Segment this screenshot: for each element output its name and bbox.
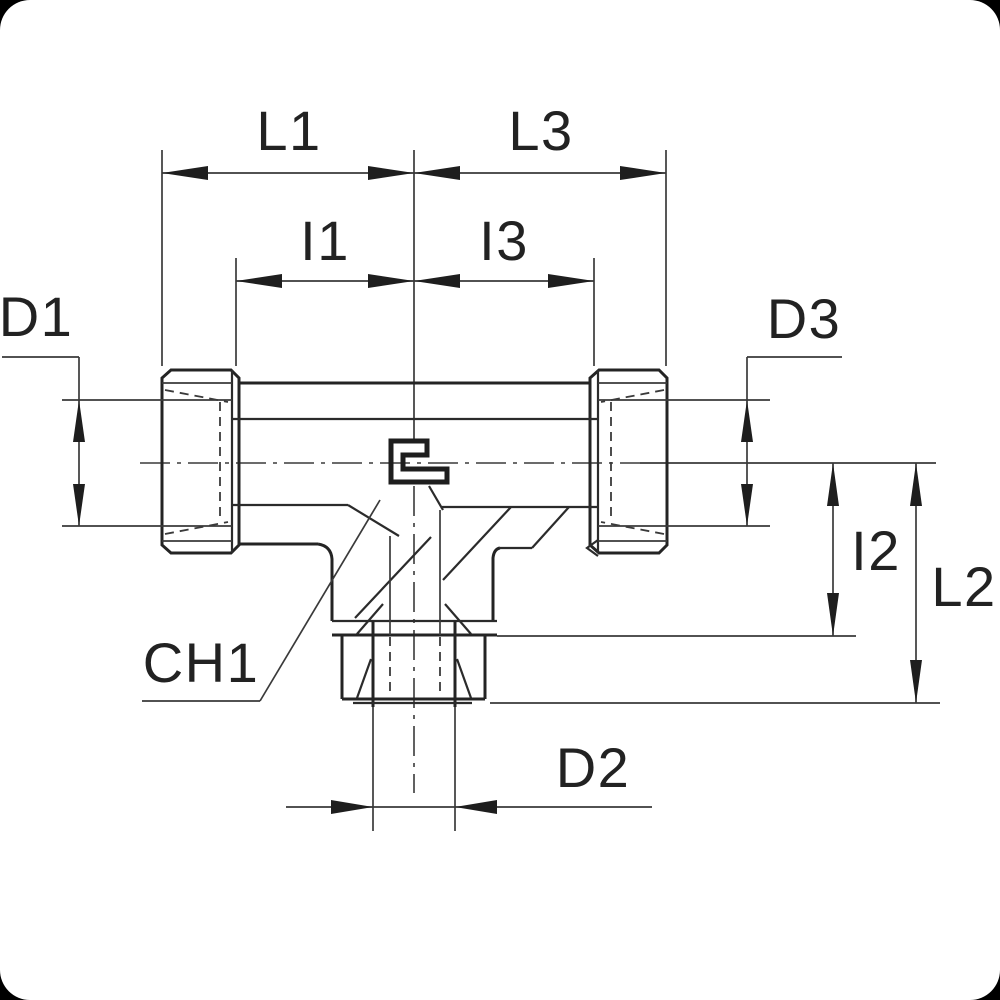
label-CH1: CH1 [143, 631, 260, 694]
body-block [318, 486, 569, 635]
dimension-I2 [497, 463, 856, 636]
centerlines [140, 150, 936, 793]
label-I1: I1 [300, 209, 350, 272]
center-section-symbol [391, 441, 447, 482]
label-L3: L3 [508, 99, 573, 162]
page-background: L1 L3 I1 I3 D1 D3 I2 L2 CH1 D2 [0, 0, 1000, 1000]
label-L2: L2 [931, 555, 996, 618]
label-D2: D2 [556, 736, 631, 799]
label-D3: D3 [767, 287, 842, 350]
tube-body [232, 383, 598, 548]
label-I3: I3 [479, 209, 529, 272]
label-L1: L1 [256, 99, 321, 162]
drawing-card: L1 L3 I1 I3 D1 D3 I2 L2 CH1 D2 [0, 0, 1000, 1000]
dimension-L2 [490, 463, 940, 703]
tee-fitting-drawing: L1 L3 I1 I3 D1 D3 I2 L2 CH1 D2 [0, 0, 1000, 1000]
label-I2: I2 [851, 519, 901, 582]
dimension-labels: L1 L3 I1 I3 D1 D3 I2 L2 CH1 D2 [0, 99, 997, 799]
label-D1: D1 [0, 285, 73, 348]
dimensions [2, 150, 940, 831]
dimension-I1-I3 [236, 258, 594, 366]
